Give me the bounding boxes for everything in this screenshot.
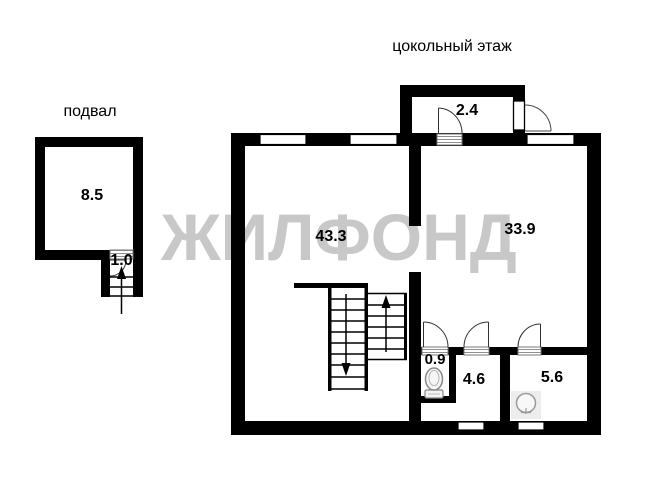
window	[350, 135, 397, 145]
room-area-hall: 4.6	[450, 371, 498, 389]
basement-walls	[35, 137, 143, 297]
door-arc	[424, 322, 449, 347]
basement-floor-title: подвал	[37, 103, 143, 121]
toilet-icon	[425, 368, 443, 398]
ground-floor-title: цокольный этаж	[377, 38, 527, 56]
floor-plan-graphic	[0, 0, 664, 502]
room-area-bath: 5.6	[528, 369, 576, 387]
floor-plan-page: ЖИЛФОНД	[0, 0, 664, 502]
main-staircase	[294, 283, 407, 391]
door-threshold	[437, 134, 462, 145]
room-area-basement-stairs: 1.0	[105, 252, 138, 270]
room-area-porch: 2.4	[437, 102, 497, 120]
window	[458, 422, 484, 430]
window	[260, 135, 306, 145]
room-area-basement: 8.5	[62, 187, 122, 205]
window	[527, 135, 574, 145]
sink-icon	[511, 391, 541, 419]
room-area-wc: 0.9	[419, 351, 451, 368]
door-arc	[464, 322, 489, 347]
door-frame	[514, 101, 525, 130]
room-area-right: 33.9	[493, 221, 547, 239]
arrow-up-icon	[382, 295, 391, 352]
arrow-down-icon	[342, 294, 351, 376]
door-arc	[518, 324, 541, 347]
door-threshold	[518, 347, 541, 355]
door-threshold	[464, 347, 489, 355]
window	[518, 422, 544, 430]
room-area-left: 43.3	[304, 228, 358, 246]
door-arc	[525, 105, 551, 131]
